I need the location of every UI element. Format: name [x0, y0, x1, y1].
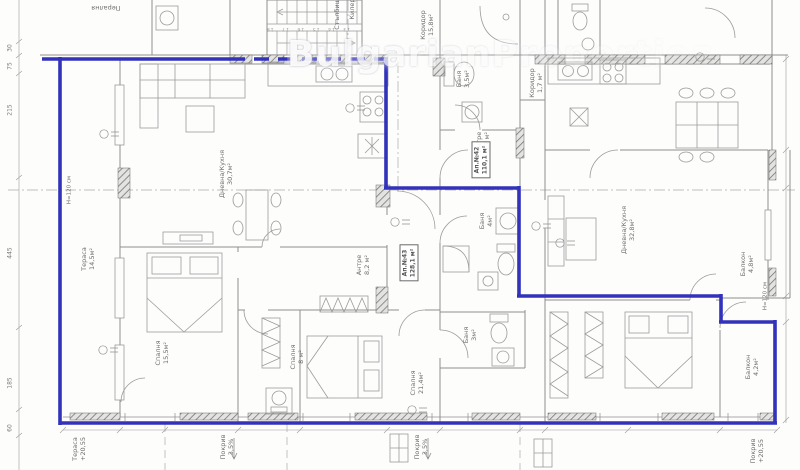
dim-left-3: 215 [6, 104, 14, 115]
dim-left-5: 185 [6, 377, 14, 388]
room-label-bedroom-2: Спалня8 м² [289, 344, 305, 369]
room-label-bath-1: Баня3,5м² [455, 70, 471, 88]
bed-icon-3 [625, 312, 692, 388]
dim-left-1: 30 [6, 44, 14, 52]
bed-icon [147, 253, 222, 332]
parapet-note-2: Н=120 см [763, 282, 770, 310]
dim-left-6: 60 [6, 424, 14, 432]
dim-left-4: 445 [6, 247, 14, 258]
wardrobe-icon-2 [550, 312, 603, 398]
dining-table-icon-2 [676, 88, 738, 162]
dim-left-2: 75 [6, 62, 14, 70]
room-label-living-2: Дневна/Кухня32,8м² [620, 206, 636, 254]
room-label-closet: Килер [348, 0, 356, 20]
parapet-note-1: Н=120 см [67, 176, 74, 204]
slope-label-roof-1: Покрив3,5% [219, 435, 235, 460]
bathroom-icon-3 [490, 314, 514, 366]
slope-arrow-icon [231, 438, 431, 459]
wall-hatch [70, 55, 776, 420]
room-label-living-1: Дневна/Кухня30,7м² [218, 150, 234, 198]
room-label-bath-3: Баня3м² [462, 327, 478, 344]
dining-table-icon [233, 190, 281, 240]
kitchen-counter-icon [268, 62, 388, 158]
room-label-corridor: Коридор15,8м² [419, 10, 435, 40]
coffee-table-icon [186, 106, 214, 132]
storage-cabinet-icon [262, 318, 292, 414]
elevation-label-roof: Покрив+20,55 [749, 439, 765, 464]
elevation-label-terrace: Тераса+20,55 [71, 437, 87, 461]
laundry-machine-icon [156, 6, 178, 30]
bed-icon-2 [307, 336, 382, 398]
sofa-icon-2 [548, 196, 596, 266]
room-label-corridor-2: Коридор1,7 м² [528, 68, 544, 98]
dimension-lines [16, 0, 789, 470]
kitchen-counter-icon-2 [548, 58, 660, 126]
room-label-balcony-1: Балкон4,8м² [739, 252, 755, 277]
room-label-balcony-2: Балкон4,2м² [744, 355, 760, 380]
room-label-bedroom-3: Спалня21,4м² [409, 370, 425, 395]
stair-step-numbers: 13 14 15 16 17 18 [266, 25, 350, 31]
room-label-terrace: Тераса14,5м² [80, 247, 96, 271]
tv-cabinet-icon [163, 232, 213, 244]
floorplan-linework [0, 0, 800, 470]
toilet-icon-upper [572, 4, 594, 50]
apartment-tag-42: Ап.№42110,1 м² [472, 142, 491, 179]
room-label-laundry: Пералня [91, 4, 120, 12]
bathroom-icon [444, 6, 518, 122]
sofa-icon [140, 64, 245, 128]
room-label-bedroom-1: Спалня15,5м² [154, 340, 170, 365]
room-label-entry-2: Антре8,2 м² [355, 255, 371, 276]
room-label-bath-2: Баня4м² [478, 213, 494, 230]
centerlines [8, 0, 795, 470]
floor-plan-page: { "watermark": { "text": "BulgarianPrope… [0, 0, 800, 470]
slope-label-roof-2: Покрив3,5% [413, 435, 429, 460]
apartment-tag-43: Ап.№43128,1 м² [400, 245, 419, 282]
